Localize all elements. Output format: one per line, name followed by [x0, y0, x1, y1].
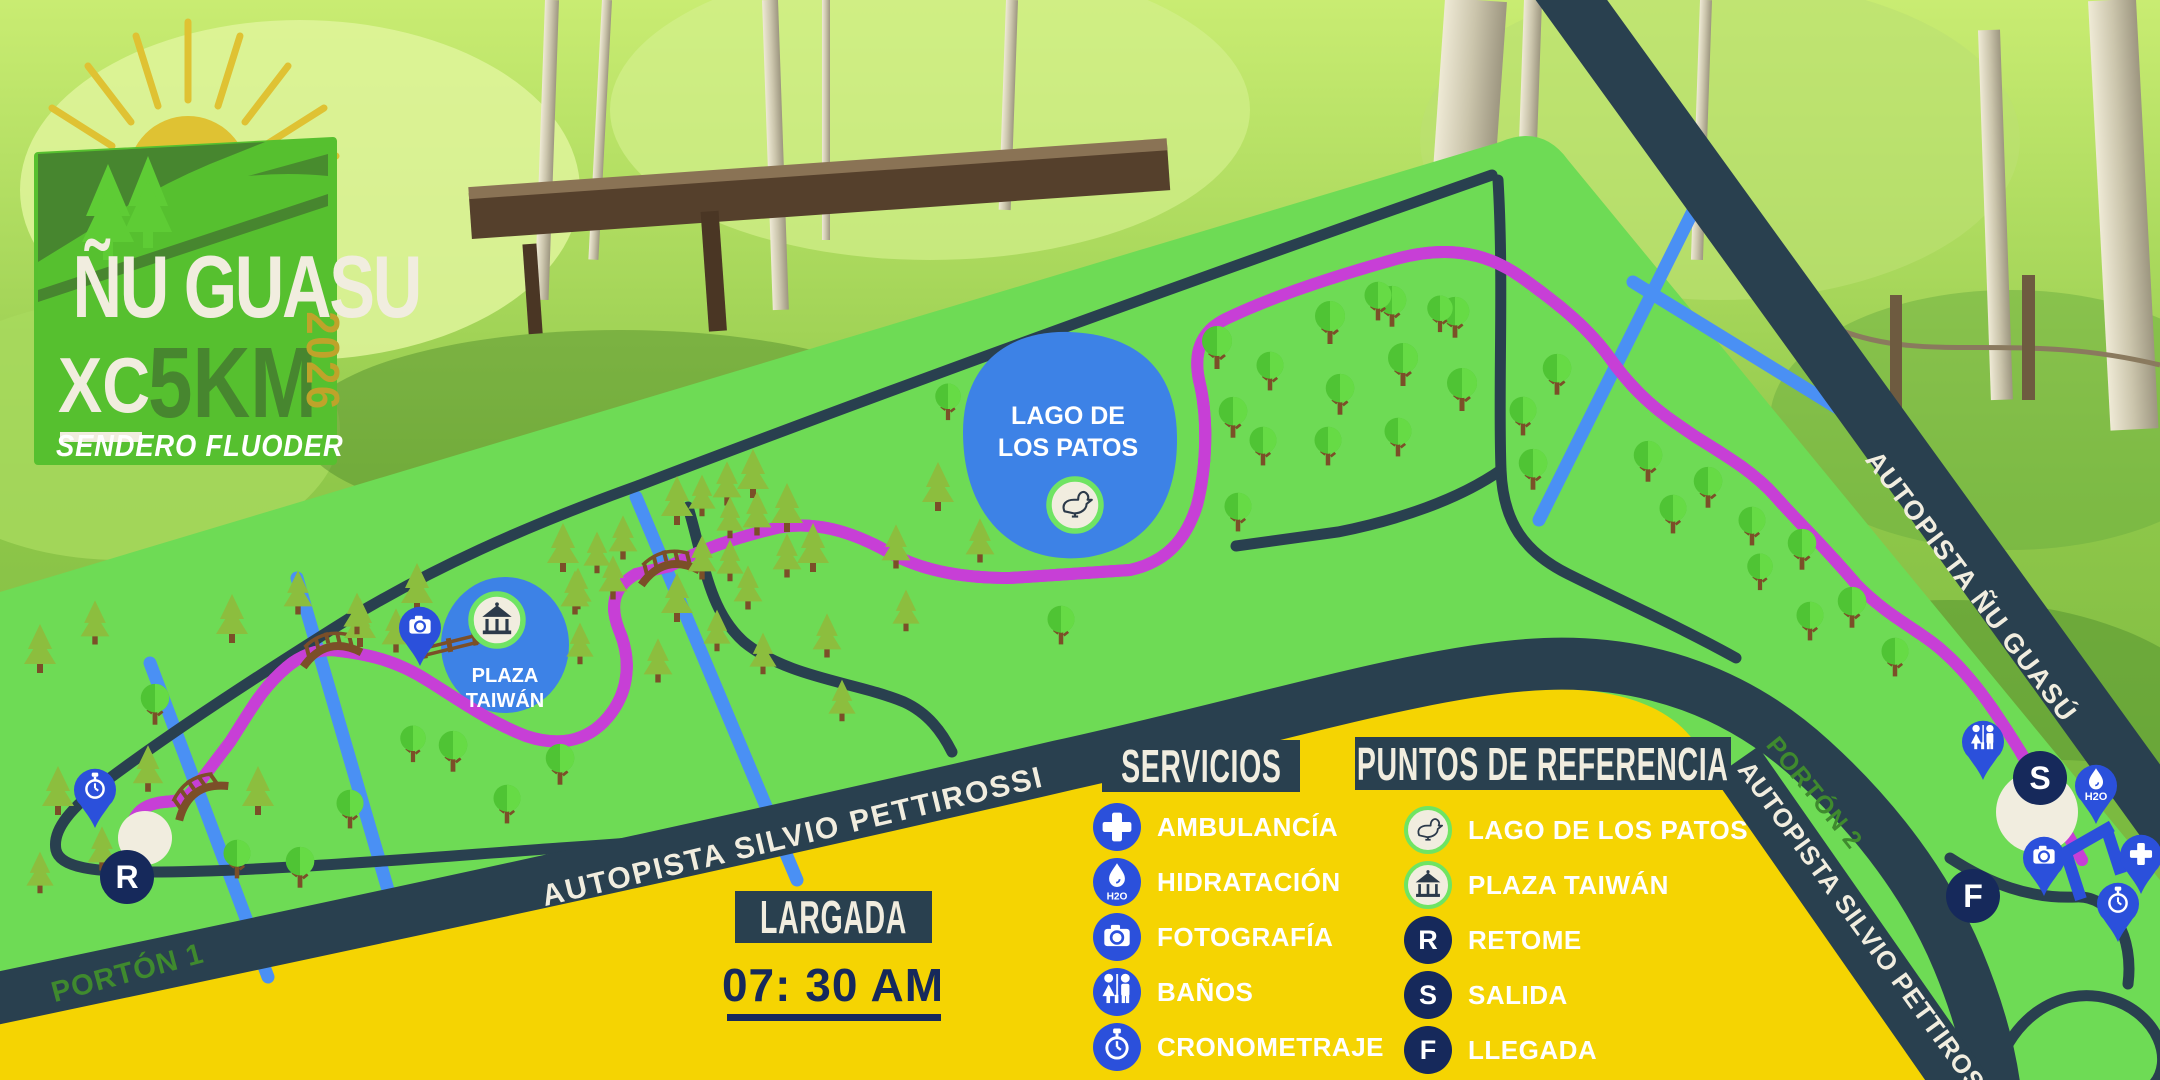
- logo-title: ÑU GUASU: [73, 236, 304, 338]
- legend-item-plaza: PLAZA TAIWÁN: [1404, 861, 1748, 909]
- spot-gazebo-icon: [471, 594, 523, 646]
- legend-item-cronometraje: CRONOMETRAJE: [1093, 1023, 1384, 1071]
- water-drop-icon: H2O: [1093, 858, 1141, 906]
- restrooms-icon: [1093, 968, 1141, 1016]
- letter-badge-R: R: [100, 850, 154, 904]
- svg-text:H2O: H2O: [1107, 892, 1128, 903]
- letter-badge-S: S: [2013, 751, 2067, 805]
- gazebo-icon: [1404, 861, 1452, 909]
- legend-item-llegada: F LLEGADA: [1404, 1026, 1748, 1074]
- legend-item-salida: S SALIDA: [1404, 971, 1748, 1019]
- start-time-underline: [727, 1014, 941, 1021]
- letter-badge-F: F: [1946, 869, 2000, 923]
- h2o-pin-label: H2O: [2085, 791, 2108, 803]
- svg-text:LOS PATOS: LOS PATOS: [998, 434, 1138, 462]
- svg-text:PLAZA: PLAZA: [472, 665, 539, 687]
- race-course-poster: AUTOPISTA SILVIO PETTIROSSI AUTOPISTA SI…: [0, 0, 2160, 1080]
- references-legend: LAGO DE LOS PATOS PLAZA TAIWÁN R RETOME …: [1404, 806, 1748, 1074]
- salida-badge-icon: S: [1404, 971, 1452, 1019]
- services-legend: AMBULANCÍA H2O HIDRATACIÓN FOTOGRAFÍA BA…: [1093, 803, 1384, 1071]
- event-logo: ÑU GUASU XC 5KM 2026 SENDERO FLUODER: [30, 4, 342, 474]
- logo-subtitle: SENDERO FLUODER: [56, 428, 320, 464]
- start-header: LARGADA: [735, 891, 932, 943]
- svg-text:S: S: [2029, 760, 2050, 796]
- spot-duck-icon: [1049, 479, 1101, 531]
- stopwatch-icon: [1093, 1023, 1141, 1071]
- legend-item-hidratacion: H2O HIDRATACIÓN: [1093, 858, 1384, 906]
- ambulance-cross-icon: [1093, 803, 1141, 851]
- llegada-badge-icon: F: [1404, 1026, 1452, 1074]
- start-title: LARGADA: [760, 890, 907, 944]
- legend-item-banos: BAÑOS: [1093, 968, 1384, 1016]
- legend-item-fotografia: FOTOGRAFÍA: [1093, 913, 1384, 961]
- references-header: PUNTOS DE REFERENCIA: [1355, 737, 1731, 790]
- start-time: 07: 30 AM: [718, 958, 948, 1012]
- legend-item-lago: LAGO DE LOS PATOS: [1404, 806, 1748, 854]
- svg-text:LAGO DE: LAGO DE: [1011, 402, 1125, 430]
- legend-item-ambulancia: AMBULANCÍA: [1093, 803, 1384, 851]
- svg-text:R: R: [115, 859, 138, 895]
- services-title: SERVICIOS: [1121, 739, 1281, 793]
- camera-icon: [1093, 913, 1141, 961]
- svg-text:F: F: [1963, 878, 1983, 914]
- logo-year: 2026: [296, 312, 350, 411]
- references-title: PUNTOS DE REFERENCIA: [1357, 737, 1729, 791]
- duck-icon: [1404, 806, 1452, 854]
- retome-badge-icon: R: [1404, 916, 1452, 964]
- legend-item-retome: R RETOME: [1404, 916, 1748, 964]
- logo-xc: XC: [58, 340, 150, 431]
- svg-text:TAIWÁN: TAIWÁN: [466, 689, 545, 712]
- services-header: SERVICIOS: [1102, 740, 1300, 792]
- logo-distance: 5KM: [148, 326, 317, 441]
